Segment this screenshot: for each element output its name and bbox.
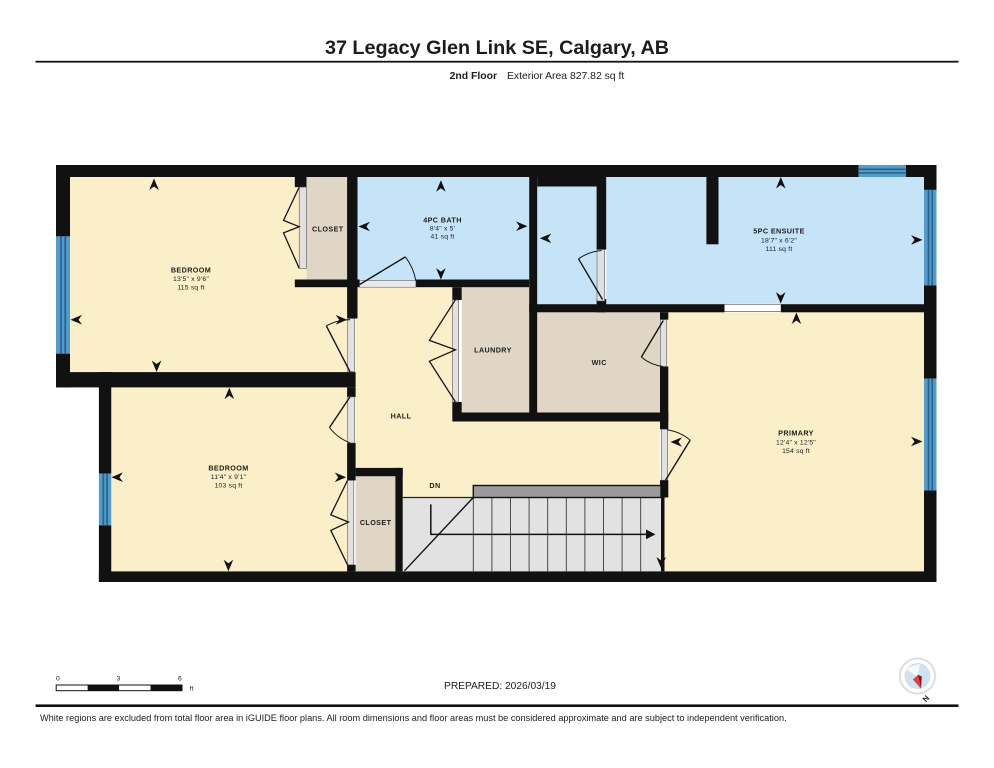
svg-text:ft: ft [190, 686, 194, 693]
svg-text:BEDROOM: BEDROOM [171, 266, 211, 275]
svg-text:18'7" x 6'2": 18'7" x 6'2" [761, 238, 797, 245]
svg-text:103 sq ft: 103 sq ft [215, 483, 243, 490]
svg-text:DN: DN [429, 481, 440, 490]
svg-text:8'4" x 5': 8'4" x 5' [430, 226, 455, 233]
svg-text:11'4" x 9'1": 11'4" x 9'1" [211, 474, 247, 481]
svg-text:111 sq ft: 111 sq ft [766, 246, 793, 253]
svg-text:5PC ENSUITE: 5PC ENSUITE [753, 227, 805, 236]
svg-text:6: 6 [178, 676, 182, 683]
svg-text:Exterior Area 827.82 sq ft: Exterior Area 827.82 sq ft [507, 71, 624, 82]
svg-text:PREPARED: 2026/03/19: PREPARED: 2026/03/19 [444, 681, 556, 692]
svg-text:13'5" x 9'6": 13'5" x 9'6" [173, 276, 209, 283]
svg-text:CLOSET: CLOSET [360, 518, 392, 527]
svg-text:3: 3 [117, 676, 121, 683]
svg-text:CLOSET: CLOSET [312, 225, 344, 234]
svg-text:HALL: HALL [391, 412, 412, 421]
svg-text:2nd Floor: 2nd Floor [450, 71, 497, 82]
svg-text:BEDROOM: BEDROOM [208, 464, 248, 473]
svg-text:White regions are excluded fro: White regions are excluded from total fl… [40, 713, 787, 723]
svg-text:154 sq ft: 154 sq ft [782, 448, 810, 455]
svg-text:WIC: WIC [592, 358, 607, 367]
svg-text:115 sq ft: 115 sq ft [177, 285, 204, 292]
svg-text:4PC BATH: 4PC BATH [423, 216, 462, 225]
svg-text:37 Legacy Glen Link SE, Calgar: 37 Legacy Glen Link SE, Calgary, AB [325, 37, 669, 59]
svg-text:LAUNDRY: LAUNDRY [474, 346, 512, 355]
svg-text:41 sq ft: 41 sq ft [431, 234, 455, 241]
svg-text:12'4" x 12'5": 12'4" x 12'5" [776, 440, 816, 447]
svg-text:N: N [921, 693, 932, 703]
svg-text:0: 0 [56, 676, 60, 683]
svg-text:PRIMARY: PRIMARY [778, 429, 814, 438]
